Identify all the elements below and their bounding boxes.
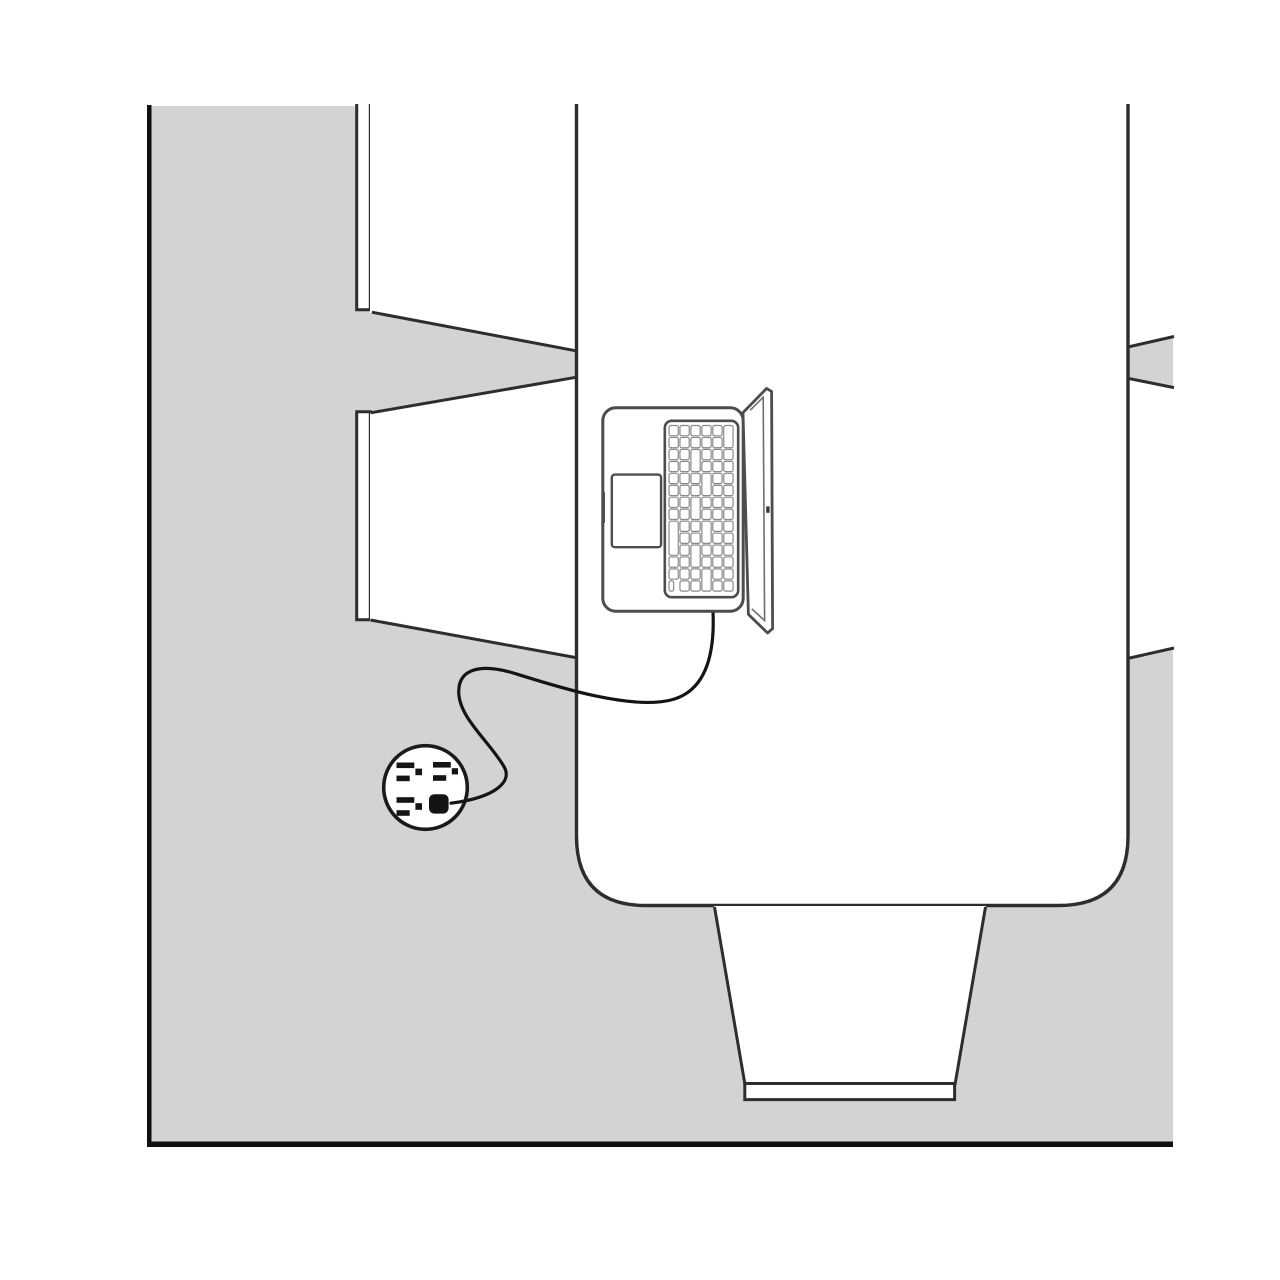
laptop-key [702,437,711,447]
chair-top-left-seat [370,104,576,352]
outlet-ground-hole [415,803,422,810]
laptop-key [702,521,711,543]
chair-mid-right [1128,378,1174,658]
laptop-lid-notch [766,506,769,512]
laptop-key [669,485,678,495]
outlet-ground-hole [415,769,422,776]
laptop-key [669,569,678,579]
laptop-key [669,437,678,447]
laptop-key [680,426,689,436]
laptop-key [691,485,700,495]
laptop-key [669,581,674,591]
laptop-key [669,557,678,567]
laptop-key [713,557,722,567]
laptop-key [702,473,711,495]
laptop-key [680,533,689,543]
laptop-key [713,533,722,543]
laptop-key [669,449,678,459]
laptop-key [724,426,733,448]
laptop-key [713,581,722,591]
laptop-key [669,461,678,471]
laptop-key [691,473,700,483]
laptop-trackpad [612,475,661,548]
laptop-key [691,497,700,519]
illustration-canvas [0,0,1280,1280]
laptop-key [691,533,700,543]
room-border-left [147,105,152,1147]
chair-bottom-center [714,906,986,1100]
laptop-key [713,569,722,579]
power-plug [429,794,449,813]
chair-bottom-left-backrest [357,412,371,620]
chair-bottom-left [357,377,576,658]
illustration-page [0,0,1280,1280]
laptop-key [680,581,689,591]
floor-outlet [384,746,468,830]
laptop-key [680,509,689,519]
chair-bottom-center-seat [714,906,986,1083]
laptop-key [713,437,722,447]
laptop-key [724,557,733,567]
outlet-slot [397,810,410,816]
laptop-key [724,533,733,543]
laptop-key [724,545,733,555]
laptop-key [713,426,722,436]
laptop-key [691,569,700,579]
laptop-key [702,509,711,519]
laptop [603,388,773,633]
laptop-key [702,545,711,555]
laptop-key [724,569,733,579]
laptop-key [680,569,689,579]
laptop-key [680,557,689,567]
laptop-key [680,473,689,483]
laptop-key [680,461,689,471]
laptop-key [680,545,689,555]
laptop-key [680,449,689,459]
laptop-key [702,569,711,591]
room-border-bottom [147,1142,1173,1148]
laptop-key [724,461,733,471]
laptop-key [691,545,700,567]
laptop-key [713,485,722,495]
laptop-key [680,485,689,495]
laptop-key [702,449,711,459]
laptop-key [691,581,700,591]
chair-mid-right-seat [1128,378,1174,658]
laptop-key [724,449,733,459]
laptop-key [691,521,700,531]
laptop-key [669,426,678,436]
laptop-key [691,449,700,471]
laptop-key [724,581,733,591]
laptop-key [724,485,733,495]
chair-bottom-center-backrest [745,1084,955,1100]
chair-top-left [357,104,576,352]
laptop-key [724,497,733,507]
outlet-slot [397,776,410,782]
laptop-key [724,521,733,531]
laptop-key [724,473,733,483]
laptop-key [669,509,678,519]
laptop-key [680,521,689,531]
laptop-key [713,497,722,507]
laptop-key [669,521,678,555]
chair-top-right [1128,105,1174,347]
outlet-slot [397,763,415,769]
laptop-key [691,426,700,436]
laptop-key [713,473,722,483]
laptop-key [713,521,722,531]
chair-bottom-left-seat [370,377,576,658]
laptop-key [702,497,711,507]
laptop-key [669,497,678,507]
laptop-key [713,545,722,555]
laptop-key [713,509,722,519]
outlet-slot [433,762,451,768]
laptop-key [691,437,700,447]
laptop-key [724,509,733,519]
laptop-key [702,426,711,436]
laptop-key [669,473,678,483]
laptop-key [713,449,722,459]
chair-top-right-seat [1128,105,1174,347]
outlet-slot [433,775,446,781]
outlet-ground-hole [452,768,458,774]
laptop-key [702,557,711,567]
outlet-slot [397,797,415,803]
laptop-key [702,461,711,471]
laptop-key [680,497,689,507]
laptop-key [680,437,689,447]
laptop-key [713,461,722,471]
chair-top-left-backrest [357,104,371,310]
